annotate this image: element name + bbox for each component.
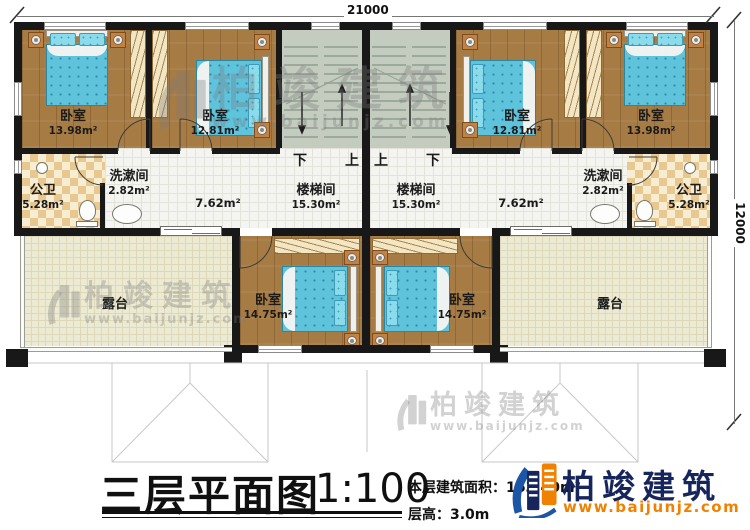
wall bbox=[272, 228, 460, 236]
room-name: 卧室 bbox=[28, 110, 118, 125]
room-area: 5.28m² bbox=[656, 199, 722, 211]
wall bbox=[150, 148, 180, 154]
room-area: 14.75m² bbox=[226, 309, 310, 321]
room-area: 7.62m² bbox=[488, 197, 554, 210]
room-label-bedroom-bottom-right: 卧室 14.75m² bbox=[420, 294, 504, 321]
bed-fold bbox=[625, 45, 685, 56]
room-name: 楼梯间 bbox=[376, 184, 456, 199]
room-label-bedroom-top-left: 卧室 13.98m² bbox=[28, 110, 118, 137]
room-area: 13.98m² bbox=[28, 125, 118, 137]
closet bbox=[586, 30, 602, 118]
room-area: 15.30m² bbox=[276, 199, 356, 211]
room-name: 露台 bbox=[80, 298, 150, 313]
watermark: 柏竣建筑 www.baijunjz.com bbox=[392, 392, 585, 434]
brand-website: www.baijunjz.com bbox=[563, 498, 740, 516]
wall bbox=[14, 228, 160, 236]
room-area: 7.62m² bbox=[185, 197, 251, 210]
column bbox=[704, 349, 726, 367]
room-label-bedroom-top-mid-right: 卧室 12.81m² bbox=[472, 110, 562, 137]
sliding-door bbox=[160, 226, 222, 236]
bed-pillow bbox=[386, 270, 398, 296]
stair-direction-label: 下 bbox=[426, 150, 440, 170]
wall bbox=[146, 30, 152, 148]
wall bbox=[450, 22, 456, 148]
lower-roof-outline bbox=[28, 363, 704, 462]
column bbox=[6, 349, 28, 367]
closet bbox=[564, 30, 580, 118]
room-name: 露台 bbox=[575, 298, 645, 313]
window bbox=[44, 22, 106, 30]
room-name: 公卫 bbox=[10, 184, 76, 199]
room-name: 楼梯间 bbox=[276, 184, 356, 199]
room-name: 洗漱间 bbox=[94, 170, 164, 185]
bed-headboard bbox=[350, 266, 357, 332]
closet bbox=[152, 30, 168, 118]
room-label-hall-right: 7.62m² bbox=[488, 197, 554, 210]
shower-head bbox=[684, 162, 696, 174]
room-name: 卧室 bbox=[170, 110, 260, 125]
sink bbox=[590, 204, 620, 224]
window bbox=[14, 82, 22, 116]
wall bbox=[14, 148, 118, 154]
room-label-terrace-right: 露台 bbox=[575, 298, 645, 313]
room-label-bedroom-top-right: 卧室 13.98m² bbox=[606, 110, 696, 137]
room-label-bedroom-top-mid-left: 卧室 12.81m² bbox=[170, 110, 260, 137]
room-area: 14.75m² bbox=[420, 309, 504, 321]
stair-direction-label: 上 bbox=[374, 150, 388, 170]
stair-flight bbox=[324, 46, 358, 142]
terrace-parapet bbox=[500, 347, 712, 352]
terrace-parapet bbox=[20, 236, 25, 348]
nightstand bbox=[344, 250, 360, 265]
bed-pillow bbox=[334, 270, 346, 296]
room-area: 2.82m² bbox=[568, 185, 638, 197]
bed-pillow bbox=[50, 33, 76, 46]
wall bbox=[302, 345, 370, 353]
window bbox=[258, 345, 302, 353]
floor-plan-page: 21000 12000 卧室 13.98m² 卧室 12.81m² 卧室 12.… bbox=[0, 0, 750, 530]
watermark-text: 柏竣建筑 bbox=[430, 392, 585, 419]
nightstand bbox=[28, 32, 44, 48]
terrace-parapet bbox=[707, 236, 712, 348]
nightstand bbox=[254, 34, 270, 50]
sink bbox=[112, 204, 142, 224]
room-label-bedroom-bottom-left: 卧室 14.75m² bbox=[226, 294, 310, 321]
floor-terrace-right bbox=[500, 236, 708, 346]
wall bbox=[492, 228, 510, 236]
nightstand bbox=[372, 250, 388, 265]
window bbox=[392, 22, 421, 30]
window bbox=[710, 160, 718, 174]
floor-terrace-left bbox=[24, 236, 232, 346]
wall bbox=[212, 148, 280, 154]
room-area: 5.28m² bbox=[10, 199, 76, 211]
stair-flight bbox=[372, 46, 406, 142]
room-label-washroom-right: 洗漱间 2.82m² bbox=[568, 170, 638, 197]
dimension-depth: 12000 bbox=[733, 199, 747, 247]
window bbox=[710, 82, 718, 116]
watermark-url: www.baijunjz.com bbox=[430, 419, 585, 433]
room-area: 12.81m² bbox=[170, 125, 260, 137]
floor-height-text: 层高：3.0m bbox=[408, 504, 489, 524]
title-underline bbox=[102, 511, 402, 514]
room-name: 卧室 bbox=[606, 110, 696, 125]
room-label-stairwell-right: 楼梯间 15.30m² bbox=[376, 184, 456, 211]
toilet bbox=[636, 200, 653, 221]
wall bbox=[362, 345, 430, 353]
stair-direction-label: 下 bbox=[293, 150, 307, 170]
room-area: 15.30m² bbox=[376, 199, 456, 211]
window bbox=[311, 22, 340, 30]
room-label-bathroom-right: 公卫 5.28m² bbox=[656, 184, 722, 211]
wall bbox=[276, 22, 282, 148]
bed-pillow bbox=[386, 300, 398, 326]
bed-pillow bbox=[628, 33, 654, 46]
watermark-logo-icon bbox=[392, 392, 430, 434]
room-name: 卧室 bbox=[226, 294, 310, 309]
bed-pillow bbox=[657, 33, 683, 46]
stair-direction-label: 上 bbox=[345, 150, 359, 170]
bed-pillow bbox=[334, 300, 346, 326]
room-name: 洗漱间 bbox=[568, 170, 638, 185]
terrace-parapet bbox=[20, 347, 232, 352]
brand-logo-icon bbox=[505, 458, 559, 518]
nightstand bbox=[606, 32, 622, 48]
closet bbox=[130, 30, 146, 118]
room-label-washroom-left: 洗漱间 2.82m² bbox=[94, 170, 164, 197]
window bbox=[14, 160, 22, 174]
bed-pillow bbox=[472, 64, 484, 94]
title-underline-thin bbox=[102, 517, 402, 518]
room-area: 12.81m² bbox=[472, 125, 562, 137]
nightstand bbox=[462, 34, 478, 50]
bed-pillow bbox=[248, 64, 260, 94]
room-name: 公卫 bbox=[656, 184, 722, 199]
toilet bbox=[79, 200, 96, 221]
room-label-terrace-left: 露台 bbox=[80, 298, 150, 313]
bed-headboard bbox=[375, 266, 382, 332]
bed-pillow bbox=[79, 33, 105, 46]
window bbox=[483, 22, 547, 30]
toilet-tank bbox=[634, 221, 656, 227]
room-label-bathroom-left: 公卫 5.28m² bbox=[10, 184, 76, 211]
window bbox=[185, 22, 249, 30]
room-label-stairwell-left: 楼梯间 15.30m² bbox=[276, 184, 356, 211]
window bbox=[430, 345, 474, 353]
wall bbox=[222, 228, 240, 236]
stair-flight bbox=[284, 46, 318, 142]
window bbox=[626, 22, 688, 30]
toilet-tank bbox=[76, 221, 98, 227]
wall bbox=[552, 148, 582, 154]
nightstand bbox=[110, 32, 126, 48]
stair-flight bbox=[412, 46, 446, 142]
wall bbox=[362, 22, 370, 352]
bed-fold bbox=[47, 45, 107, 56]
dimension-width: 21000 bbox=[344, 3, 392, 17]
wall bbox=[580, 30, 586, 148]
room-area: 13.98m² bbox=[606, 125, 696, 137]
room-name: 卧室 bbox=[420, 294, 504, 309]
wall bbox=[572, 228, 718, 236]
room-area: 2.82m² bbox=[94, 185, 164, 197]
room-label-hall-left: 7.62m² bbox=[185, 197, 251, 210]
nightstand bbox=[688, 32, 704, 48]
shower-head bbox=[36, 162, 48, 174]
wall bbox=[452, 148, 520, 154]
wall bbox=[614, 148, 718, 154]
sliding-door bbox=[510, 226, 572, 236]
room-name: 卧室 bbox=[472, 110, 562, 125]
